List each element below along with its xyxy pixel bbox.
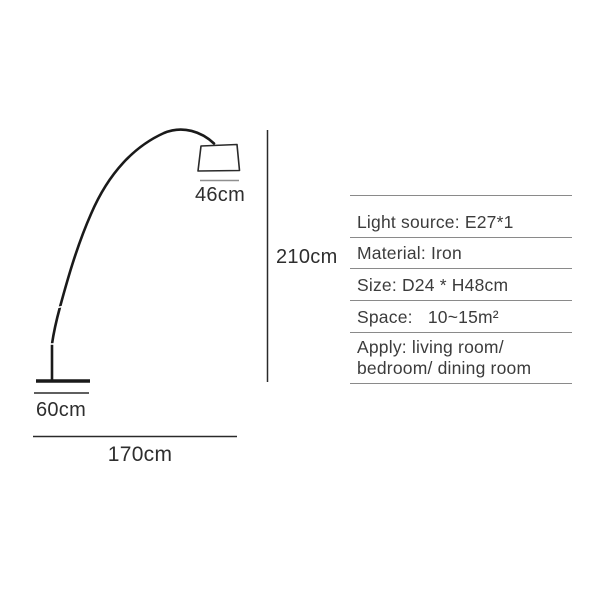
spec-table: Light source: E27*1 Material: Iron Size:… — [350, 195, 572, 384]
spec-row-space: Space: 10~15m² — [350, 300, 572, 332]
spec-row-text: Apply: living room/ bedroom/ dining room — [357, 337, 531, 379]
spec-row-size: Size: D24 * H48cm — [350, 268, 572, 300]
spec-row-text: Light source: E27*1 — [357, 212, 514, 233]
total-width-label: 170cm — [108, 444, 173, 466]
shade-width-label: 46cm — [195, 184, 245, 206]
spec-row-text: Material: Iron — [357, 243, 462, 264]
spec-row-text: Size: D24 * H48cm — [357, 275, 508, 296]
height-label: 210cm — [276, 246, 338, 268]
base-width-label: 60cm — [36, 399, 86, 421]
spec-row-light-source: Light source: E27*1 — [350, 195, 572, 237]
spec-row-text: Space: 10~15m² — [357, 307, 499, 328]
lamp-shade — [198, 145, 240, 172]
product-spec-image: 46cm 210cm 60cm 170cm Light source: E27*… — [0, 0, 600, 600]
spec-row-apply: Apply: living room/ bedroom/ dining room — [350, 332, 572, 383]
pole-joint-upper — [57, 307, 63, 308]
lamp-arc-pole — [52, 130, 214, 380]
spec-row-material: Material: Iron — [350, 237, 572, 268]
